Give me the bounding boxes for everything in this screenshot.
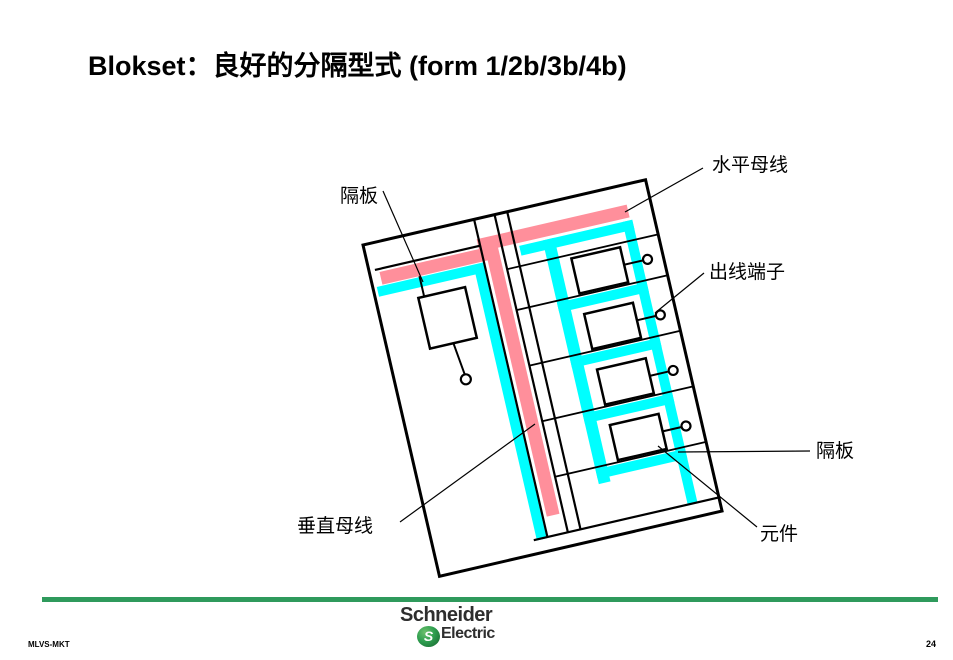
label-horizontal-busbar: 水平母线 [712, 150, 788, 177]
cabinet-group [363, 180, 722, 577]
label-partition-top: 隔板 [330, 181, 378, 208]
label-partition-right: 隔板 [816, 436, 854, 463]
schneider-ball-icon: S [417, 626, 440, 647]
terminal-circle-1 [642, 254, 653, 265]
terminal-circle-4 [681, 421, 692, 432]
logo-electric-text: Electric [441, 625, 495, 643]
schneider-electric-logo: Schneider S Electric [398, 604, 508, 652]
logo-schneider-text: Schneider [400, 604, 492, 627]
label-vertical-busbar: 垂直母线 [297, 511, 373, 538]
terminal-circle-3 [668, 365, 679, 376]
incomer-terminal-circle [460, 373, 472, 385]
label-outgoing-terminal: 出线端子 [709, 257, 785, 284]
label-component: 元件 [760, 519, 798, 546]
switchboard-diagram [0, 0, 953, 660]
page-number: 24 [926, 639, 936, 649]
footer-divider-line [42, 597, 938, 602]
slide: Blokset：良好的分隔型式 (form 1/2b/3b/4b) [0, 0, 953, 660]
incomer-component-box [418, 287, 476, 348]
footer-org-text: MLVS-MKT [28, 640, 70, 649]
